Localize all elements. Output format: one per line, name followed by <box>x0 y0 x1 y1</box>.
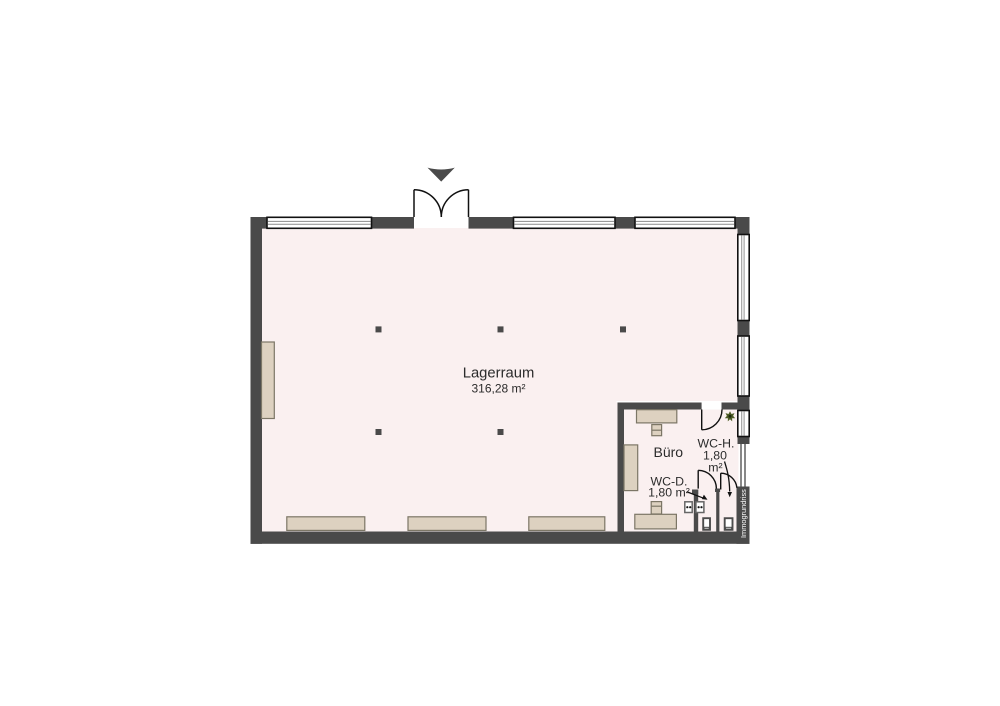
svg-text:m²: m² <box>708 460 722 474</box>
svg-text:Büro: Büro <box>654 444 684 460</box>
svg-text:Lagerraum: Lagerraum <box>463 365 535 381</box>
svg-text:1,80 m²: 1,80 m² <box>648 486 690 500</box>
svg-text:316,28 m²: 316,28 m² <box>471 382 525 396</box>
svg-text:Immogrundriss: Immogrundriss <box>739 489 748 538</box>
